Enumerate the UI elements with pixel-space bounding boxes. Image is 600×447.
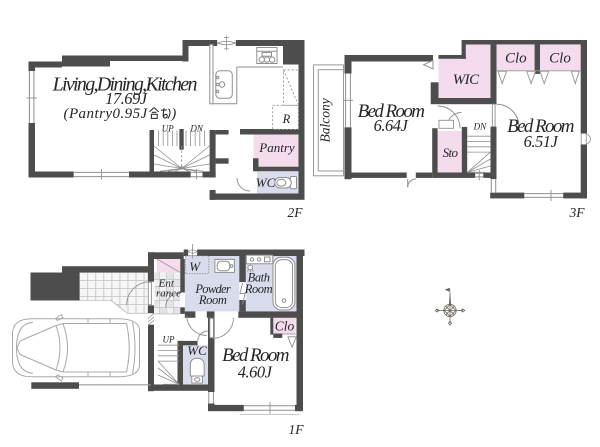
- svg-text:2F: 2F: [288, 205, 304, 220]
- svg-text:(Pantry0.95J: (Pantry0.95J: [64, 106, 149, 122]
- svg-text:Clo: Clo: [549, 51, 571, 67]
- svg-text:W: W: [189, 259, 201, 274]
- svg-text:UP: UP: [163, 335, 175, 345]
- svg-text:Room: Room: [244, 282, 273, 296]
- svg-text:DN: DN: [473, 121, 487, 131]
- svg-text:Sto: Sto: [443, 145, 459, 160]
- svg-text:rance: rance: [156, 288, 181, 300]
- svg-text:DN: DN: [189, 123, 203, 133]
- svg-text:): ): [170, 106, 176, 122]
- svg-text:WC: WC: [256, 175, 276, 190]
- svg-text:Clo: Clo: [505, 51, 527, 67]
- svg-text:WIC: WIC: [453, 72, 480, 88]
- svg-text:Room: Room: [198, 293, 227, 307]
- svg-text:R: R: [282, 112, 291, 126]
- svg-text:3F: 3F: [569, 205, 586, 220]
- svg-text:WC: WC: [187, 343, 207, 358]
- svg-text:Clo: Clo: [275, 319, 295, 334]
- svg-text:1F: 1F: [289, 422, 305, 437]
- svg-text:4.60J: 4.60J: [238, 363, 273, 382]
- svg-text:UP: UP: [162, 123, 174, 133]
- svg-text:6.51J: 6.51J: [524, 132, 559, 151]
- svg-text:6.64J: 6.64J: [374, 116, 409, 135]
- svg-text:Pantry: Pantry: [258, 140, 295, 155]
- svg-text:Balcony: Balcony: [318, 98, 333, 142]
